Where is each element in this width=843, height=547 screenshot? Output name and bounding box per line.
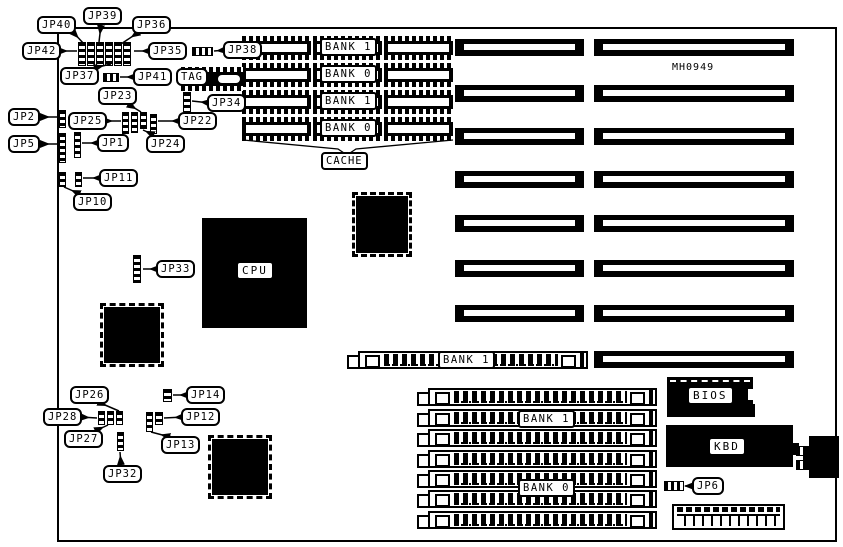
- callout-jp22: JP22: [178, 112, 217, 130]
- callout-jp40: JP40: [37, 16, 76, 34]
- cache-chip: [242, 117, 311, 141]
- callout-jp39: JP39: [83, 7, 122, 25]
- part-number: MH0949: [672, 62, 714, 73]
- jumper-block-jp2: [59, 110, 66, 128]
- simm-top-bank-label: BANK 1: [438, 351, 495, 369]
- jumper-block-jp37: [105, 42, 113, 66]
- isa-slot-right-8: [594, 351, 794, 368]
- jumper-block-jp25: [122, 112, 129, 134]
- jumper-block-jp22: [150, 114, 157, 134]
- callout-jp38: JP38: [223, 41, 262, 59]
- jumper-block-jp10: [59, 172, 66, 187]
- isa-slot-right-2: [594, 85, 794, 102]
- simm-socket-3: [428, 429, 657, 447]
- motherboard-diagram: MH0949 BANK 1 BANK 0 BANK 1 BANK 0 CACHE…: [0, 0, 843, 547]
- isa-slot-left-3: [455, 128, 584, 145]
- jumper-block-jp1: [74, 132, 81, 158]
- jumper-block-jp11: [75, 172, 82, 187]
- isa-slot-right-5: [594, 215, 794, 232]
- qfp-chip-1: [100, 303, 164, 367]
- jumper-block-jp36: [114, 42, 122, 66]
- jumper-block-jp34: [183, 92, 191, 112]
- jumper-block-jp32: [117, 432, 124, 451]
- cache-bank-label-3: BANK 1: [320, 92, 377, 110]
- simm-bank0-label: BANK 0: [518, 479, 575, 497]
- jumper-block-jp40: [78, 42, 86, 66]
- callout-jp11: JP11: [99, 169, 138, 187]
- jumper-block-cluster-2: [131, 112, 138, 133]
- simm-socket-7: [428, 511, 657, 529]
- callout-jp6: JP6: [692, 477, 724, 495]
- power-connector: [672, 504, 785, 530]
- simm-bank1-label: BANK 1: [518, 410, 575, 428]
- simm-socket-1: [428, 388, 657, 406]
- jumper-block-jp26: [116, 411, 123, 425]
- callout-jp10: JP10: [73, 193, 112, 211]
- isa-slot-left-6: [455, 260, 584, 277]
- qfp-chip-2: [352, 192, 412, 257]
- jumper-block-jp28: [98, 411, 105, 425]
- cache-bank-label-4: BANK 0: [320, 119, 377, 137]
- jumper-block-jp38: [192, 47, 213, 56]
- jumper-block-jp33: [133, 255, 141, 283]
- jumper-block-jp35: [123, 42, 131, 66]
- tag-label: TAG: [176, 68, 208, 86]
- callout-jp37: JP37: [60, 67, 99, 85]
- cache-chip: [384, 117, 453, 141]
- callout-jp23: JP23: [98, 87, 137, 105]
- jumper-block-jp5: [59, 133, 66, 163]
- cache-chip: [242, 90, 311, 114]
- callout-jp25: JP25: [68, 112, 107, 130]
- isa-slot-left-1: [455, 39, 584, 56]
- callout-jp35: JP35: [148, 42, 187, 60]
- qfp-chip-3: [208, 435, 272, 499]
- callout-jp34: JP34: [207, 94, 246, 112]
- jumper-block-jp14: [163, 389, 172, 402]
- callout-jp26: JP26: [70, 386, 109, 404]
- jumper-block-jp39: [87, 42, 95, 66]
- jumper-block-jp12: [155, 412, 163, 425]
- simm-socket-4: [428, 450, 657, 468]
- jumper-block-jp41: [103, 73, 119, 82]
- jumper-block-jp13: [146, 412, 153, 432]
- callout-jp24: JP24: [146, 135, 185, 153]
- callout-jp12: JP12: [181, 408, 220, 426]
- bios-tab: [745, 404, 755, 417]
- cache-bank-label-1: BANK 1: [320, 38, 377, 56]
- callout-jp14: JP14: [186, 386, 225, 404]
- cache-chip: [384, 36, 453, 60]
- isa-slot-right-3: [594, 128, 794, 145]
- callout-jp2: JP2: [8, 108, 40, 126]
- callout-jp36: JP36: [132, 16, 171, 34]
- bios-notch: [748, 389, 756, 400]
- callout-jp42: JP42: [22, 42, 61, 60]
- keyboard-din-connector: [809, 436, 839, 478]
- callout-jp33: JP33: [156, 260, 195, 278]
- isa-slot-right-4: [594, 171, 794, 188]
- bios-label: BIOS: [689, 388, 732, 403]
- callout-jp32: JP32: [103, 465, 142, 483]
- callout-jp5: JP5: [8, 135, 40, 153]
- callout-jp13: JP13: [161, 436, 200, 454]
- callout-jp28: JP28: [43, 408, 82, 426]
- isa-slot-left-7: [455, 305, 584, 322]
- cache-chip: [384, 90, 453, 114]
- isa-slot-right-1: [594, 39, 794, 56]
- cache-chip: [384, 63, 453, 87]
- keyboard-din-connector-neck: [803, 446, 810, 470]
- cache-chip: [242, 63, 311, 87]
- cpu-label: CPU: [238, 263, 272, 278]
- jumper-block-jp23: [140, 112, 147, 129]
- jumper-block-jp27: [107, 411, 114, 425]
- cache-bank-label-2: BANK 0: [320, 65, 377, 83]
- isa-slot-left-4: [455, 171, 584, 188]
- isa-slot-right-7: [594, 305, 794, 322]
- isa-slot-left-2: [455, 85, 584, 102]
- isa-slot-right-6: [594, 260, 794, 277]
- jumper-block-jp42: [96, 42, 104, 66]
- callout-jp27: JP27: [64, 430, 103, 448]
- cache-label: CACHE: [321, 152, 368, 170]
- callout-jp1: JP1: [97, 134, 129, 152]
- isa-slot-left-5: [455, 215, 584, 232]
- jumper-block-jp6: [664, 481, 684, 491]
- kbd-label: KBD: [710, 439, 744, 454]
- callout-jp41: JP41: [133, 68, 172, 86]
